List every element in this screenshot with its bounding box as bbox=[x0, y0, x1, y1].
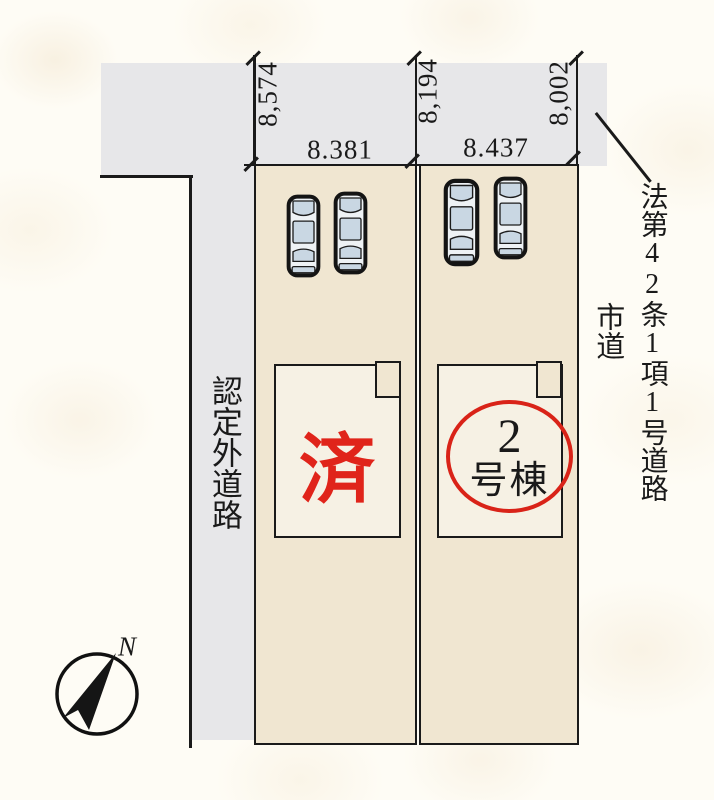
building-1-notch bbox=[375, 361, 401, 398]
road-label-right-main: 法第42条1項1号道路 bbox=[637, 182, 667, 502]
compass-north-label: N bbox=[118, 632, 136, 663]
road-edge-line-horizontal bbox=[100, 175, 193, 178]
dimension-label-right-depth: 8,002 bbox=[544, 60, 575, 126]
lot2-unit-number: 2 bbox=[498, 413, 522, 462]
dimension-label-lot1-width: 8.381 bbox=[307, 135, 373, 166]
road-label-left: 認定外道路 bbox=[207, 375, 240, 530]
car-icon bbox=[333, 189, 368, 277]
dimension-label-lot2-width: 8.437 bbox=[463, 133, 529, 164]
dimension-label-left-depth: 8,574 bbox=[253, 61, 284, 127]
car-icon bbox=[443, 177, 480, 268]
dimension-label-middle-depth: 8,194 bbox=[413, 58, 444, 124]
car-icon bbox=[286, 192, 321, 280]
lot2-unit-suffix: 号棟 bbox=[469, 462, 549, 501]
lot1-sold-mark: 済 bbox=[299, 408, 375, 518]
car-icon bbox=[493, 174, 528, 262]
dimension-line-right bbox=[576, 55, 579, 165]
road-label-right-sub: 市道 bbox=[592, 302, 623, 360]
lot2-unit-badge: 2 号棟 bbox=[446, 400, 573, 513]
building-2-notch bbox=[536, 361, 562, 398]
road-edge-line-vertical bbox=[189, 175, 192, 748]
site-plan: 8,574 8,194 8,002 8.381 8.437 済 2 号棟 bbox=[0, 0, 714, 800]
dimension-line-top bbox=[244, 164, 578, 167]
